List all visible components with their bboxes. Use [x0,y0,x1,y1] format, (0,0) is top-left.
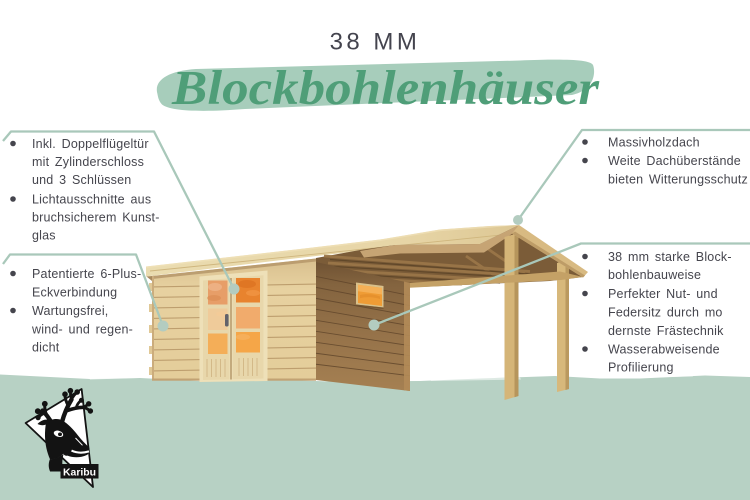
svg-text:glas: glas [32,229,56,243]
svg-text:bohlenbauweise: bohlenbauweise [608,268,701,282]
svg-text:Karibu: Karibu [63,467,96,479]
svg-text:Federsitz durch mo: Federsitz durch mo [608,306,723,320]
svg-text:dicht: dicht [32,341,60,355]
svg-text:wind- und regen-: wind- und regen- [31,323,133,337]
svg-text:dernste Frästechnik: dernste Frästechnik [608,324,724,338]
svg-text:und 3 Schlüssen: und 3 Schlüssen [32,173,131,187]
svg-text:Profilierung: Profilierung [608,361,674,375]
svg-text:mit Zylinderschloss: mit Zylinderschloss [32,155,144,169]
svg-text:Patentierte 6-Plus-: Patentierte 6-Plus- [32,267,141,281]
svg-text:Perfekter Nut- und: Perfekter Nut- und [608,287,718,301]
svg-text:38 MM: 38 MM [330,29,421,56]
svg-text:Wasserabweisende: Wasserabweisende [608,343,720,357]
svg-text:bruchsicherem Kunst-: bruchsicherem Kunst- [32,211,160,225]
svg-text:bieten Witterungsschutz: bieten Witterungsschutz [608,173,748,187]
svg-text:Lichtausschnitte aus: Lichtausschnitte aus [32,193,151,207]
svg-text:38 mm starke Block-: 38 mm starke Block- [608,250,732,264]
svg-text:Eckverbindung: Eckverbindung [32,286,117,300]
svg-text:Weite Dachüberstände: Weite Dachüberstände [608,154,741,168]
svg-text:Blockbohlenhäuser: Blockbohlenhäuser [171,60,600,115]
svg-text:Inkl. Doppelflügeltür: Inkl. Doppelflügeltür [32,137,149,151]
svg-text:Massivholzdach: Massivholzdach [608,136,700,150]
svg-text:Wartungsfrei,: Wartungsfrei, [32,304,108,318]
